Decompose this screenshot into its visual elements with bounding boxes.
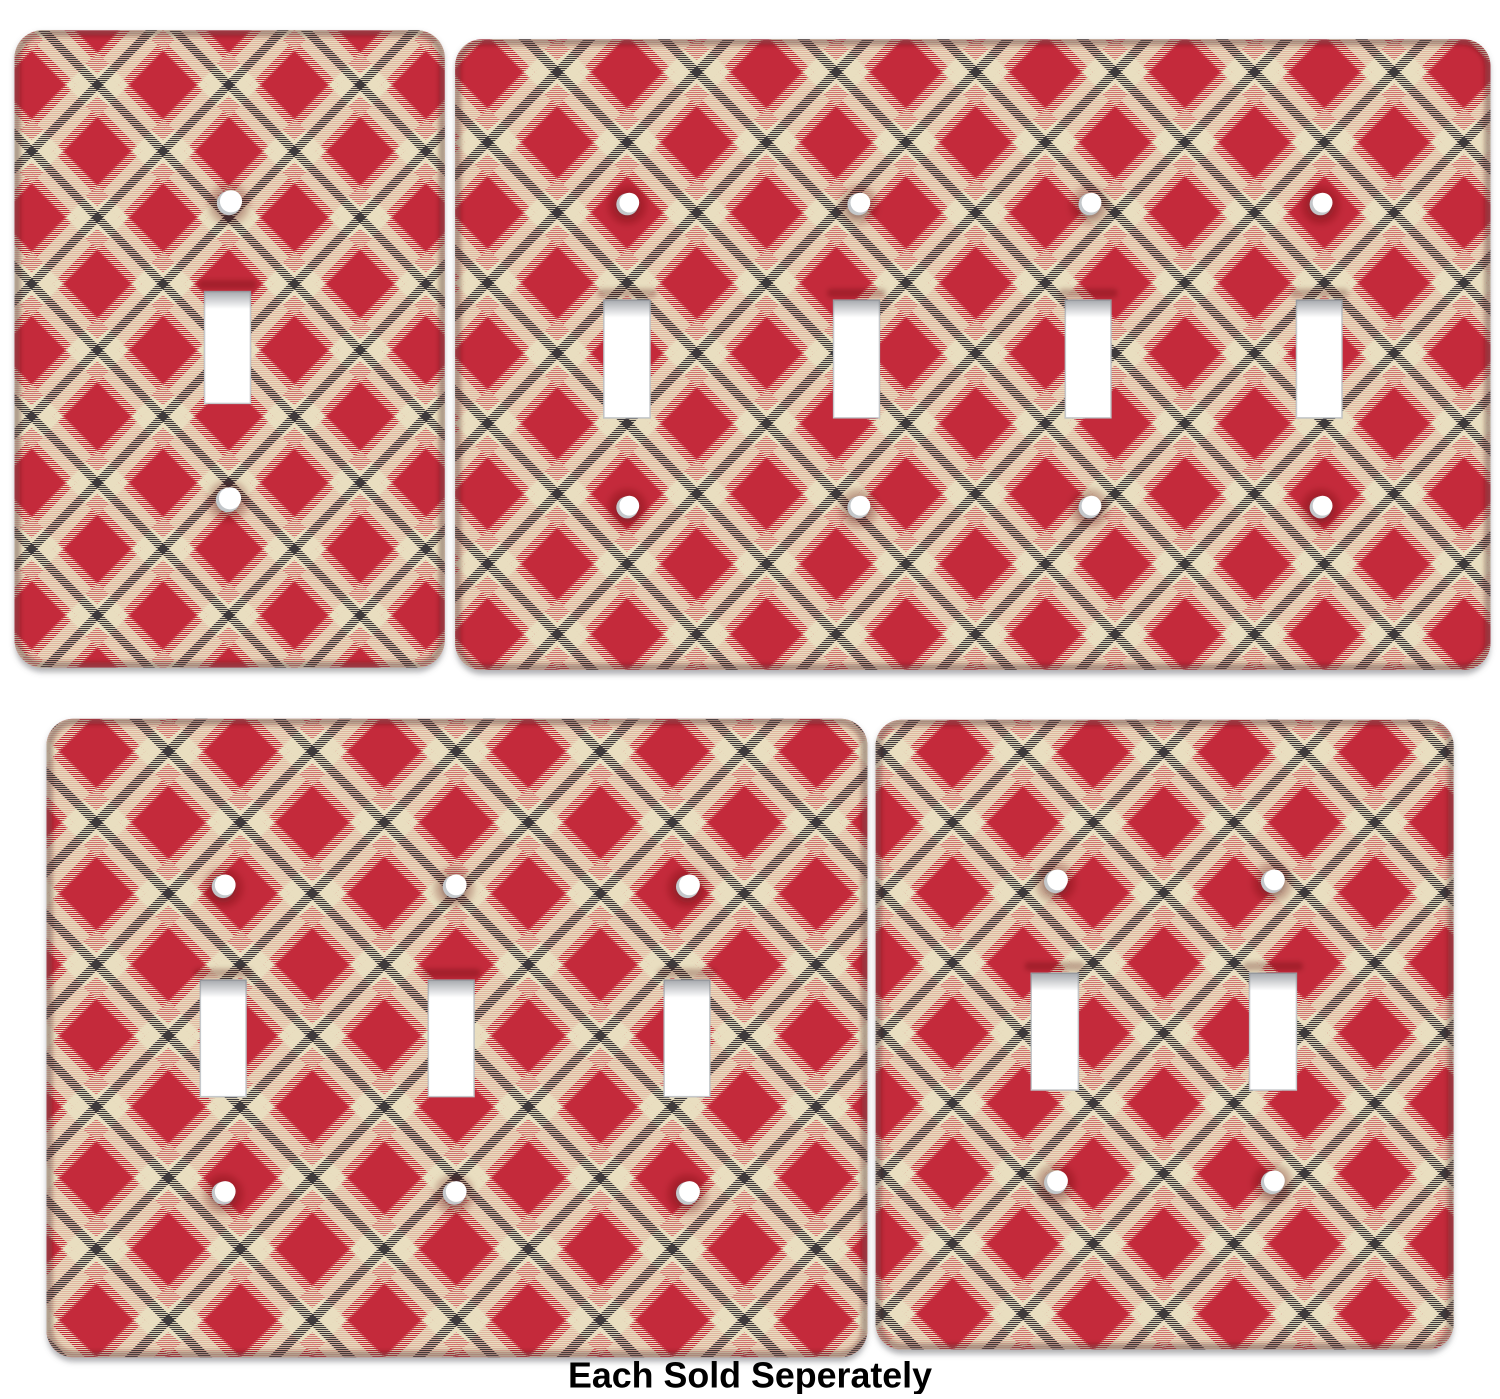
svg-text:Each Sold Seperately: Each Sold Seperately [568, 1356, 932, 1395]
